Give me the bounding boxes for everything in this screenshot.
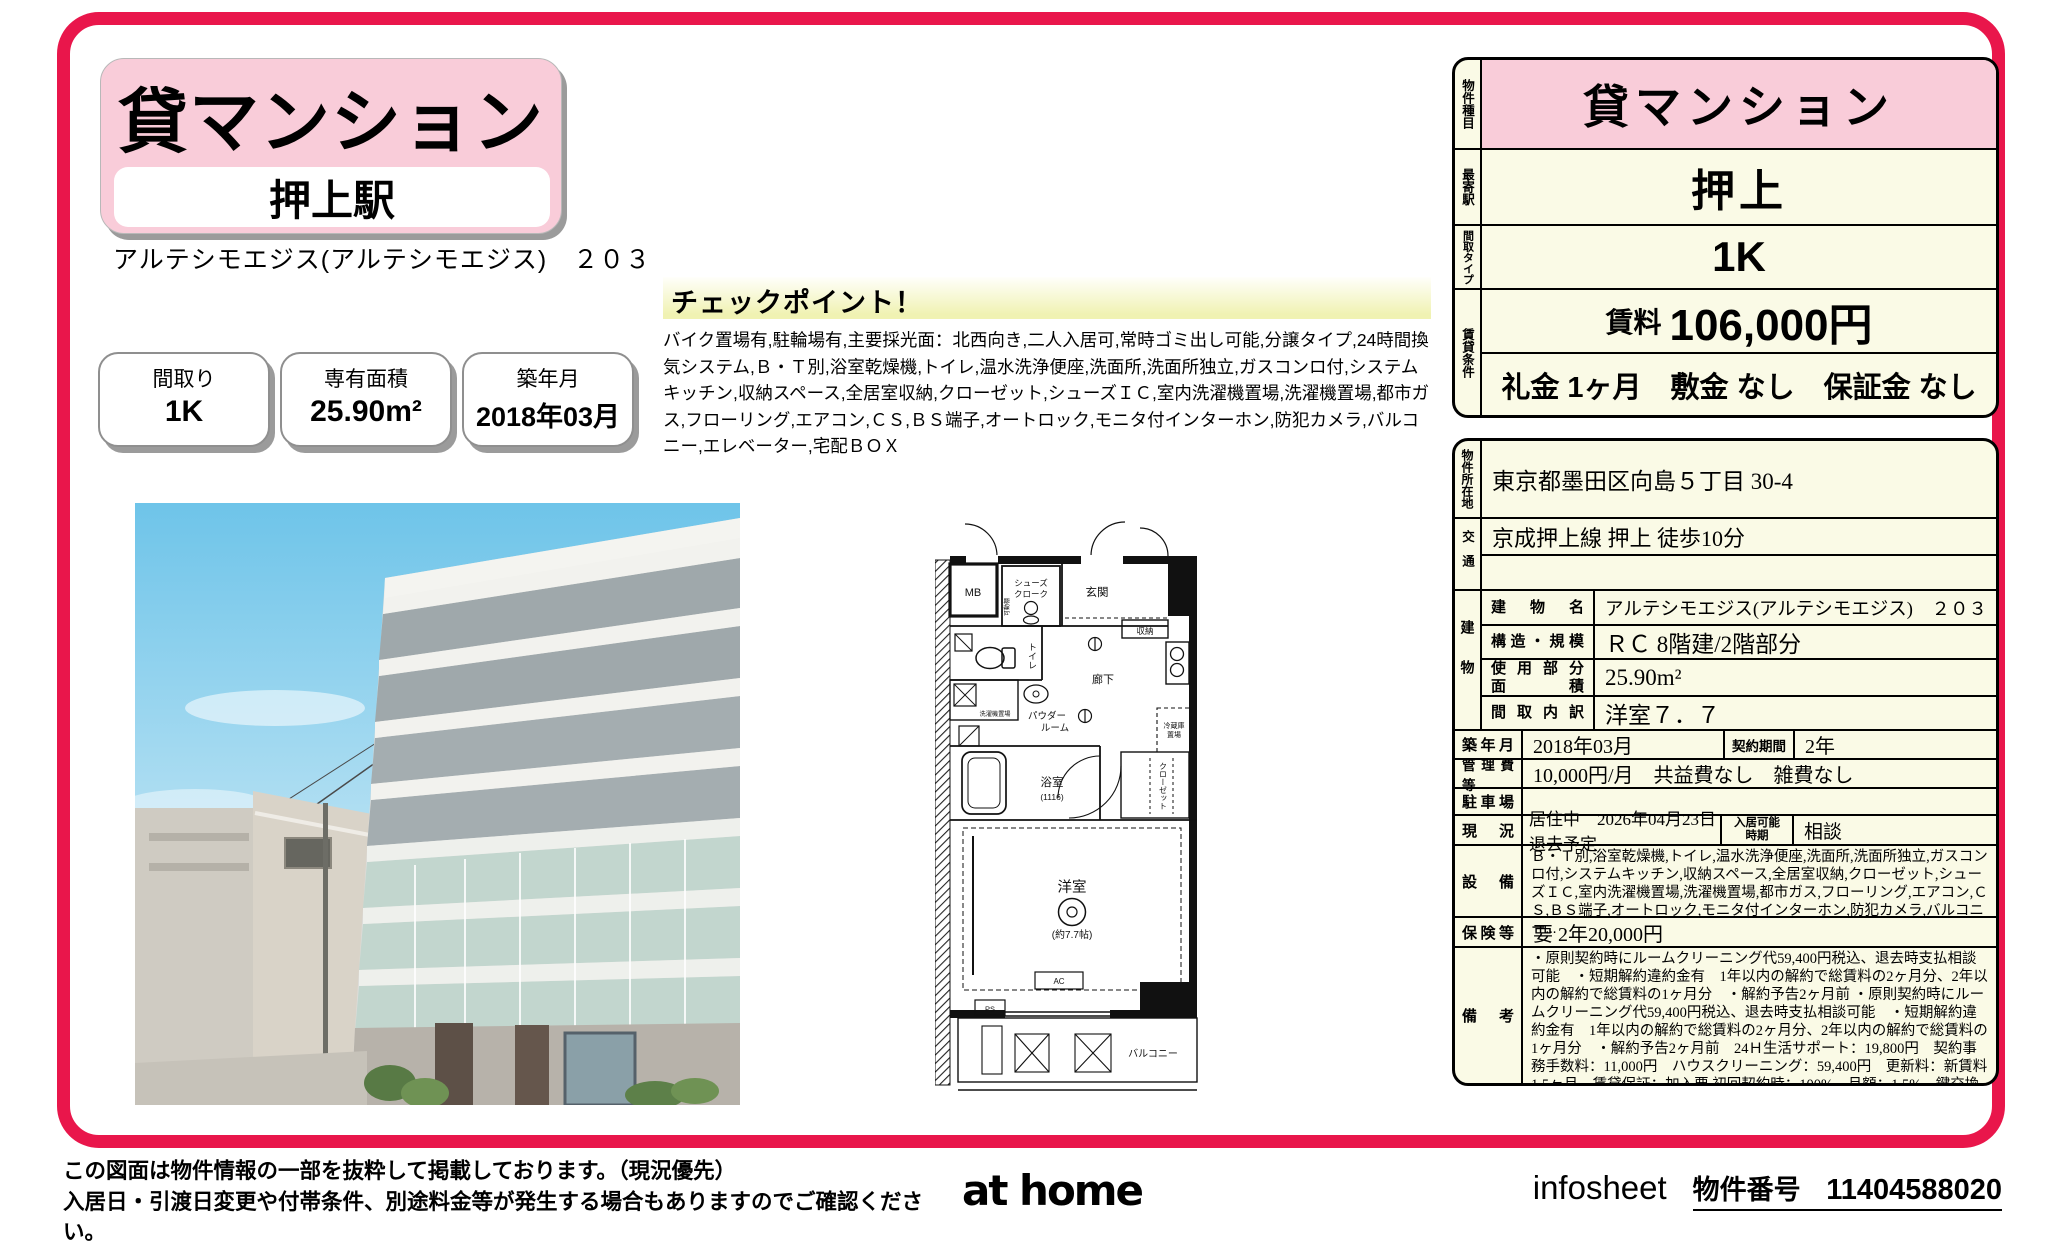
sublabel-cell: 使用部分 面 積 [1482,660,1595,695]
floor-plan-label-balcony: バルコニー [1128,1048,1178,1060]
property-number-value: 11404588020 [1826,1174,2002,1206]
building-photo [135,503,740,1105]
floor-plan-label-mb: MB [965,587,982,599]
fees-value: 10,000円/月 共益費なし 雑費なし [1523,760,1996,787]
floor-plan-label-room-size: (約7.7帖) [1052,928,1093,941]
insurance-value: 要 2年20,000円 [1523,918,1996,946]
property-type-title: 貸マンション [100,66,562,167]
move-in-value: 相談 [1794,816,1996,844]
footer-right: infosheet 物件番号 11404588020 [1520,1168,2002,1211]
station-value: 押上 [1482,150,1996,224]
athome-logo: at home [962,1166,1142,1215]
floor-plan-label-storage: 収納 [1136,626,1153,636]
contract-value: 2年 [1795,731,1996,758]
row-label: 交通 [1458,530,1477,579]
contract-label: 契約期間 [1732,735,1786,755]
row-label-cell: 物件種目 [1455,60,1482,148]
sublabel-cell: 間取内訳 [1482,697,1595,729]
floor-plan-label-bath-size: (1116) [1040,792,1063,802]
table-row: 設 備 Ｂ・Ｔ別,浴室乾燥機,トイレ,温水洗浄便座,洗面所,洗面所独立,ガスコン… [1455,844,1996,916]
floor-plan-label-fridge1: 冷蔵庫 [1164,721,1185,730]
area-value: 25.90m² [1595,660,1996,695]
floor-plan-label-powder1: パウダー [1028,710,1066,722]
floor-plan-label-laundry: 洗濯機置場 [980,710,1011,718]
status-value: 居住中 2026年04月23日退去予定 [1523,816,1720,844]
access-value: 京成押上線 押上 徒歩10分 [1482,519,1996,554]
notes-label: 備 考 [1462,1005,1514,1026]
detail-table: 物件所在地 東京都墨田区向島５丁目 30-4 交通 京成押上線 押上 徒歩10分… [1452,438,1999,1086]
building-name-value: アルテシモエジス(アルテシモエジス) ２０３ [1595,591,1996,624]
layout-value: 1K [1482,226,1996,288]
row-label-cell: 備 考 [1455,948,1523,1083]
row-label: 間取タイプ [1460,230,1476,285]
table-row: 保険等 要 2年20,000円 [1455,916,1996,946]
address-value: 東京都墨田区向島５丁目 30-4 [1482,441,1996,517]
table-row: 建物 建物名 アルテシモエジス(アルテシモエジス) ２０３ 構造・規模 ＲＣ 8… [1455,589,1996,729]
checkpoint-body: バイク置場有,駐輪場有,主要採光面：北西向き,二人入居可,常時ゴミ出し可能,分譲… [663,327,1435,460]
floor-plan-label-hallway: 廊下 [1092,672,1114,686]
spec-value: 25.90m² [282,395,450,429]
row-label-cell: 交通 [1455,519,1482,589]
table-row: 管理費等 10,000円/月 共益費なし 雑費なし [1455,758,1996,787]
row-label-cell: 管理費等 [1455,760,1523,787]
row-label: 賃貸条件 [1458,328,1477,378]
built-label: 築年月 [1462,734,1514,755]
area-label: 使用部分 面 積 [1491,660,1584,695]
checkpoint-title: チェックポイント！ [663,277,1431,319]
floor-plan-label-closet: クローゼット [1159,762,1168,810]
floor-plan-label-shoes2: クローク [1014,589,1048,599]
station-badge: 押上駅 [114,167,550,227]
property-type-value: 貸マンション [1482,60,1996,148]
move-in-label: 入居可能 時期 [1726,817,1788,842]
table-row: 物件所在地 東京都墨田区向島５丁目 30-4 [1455,441,1996,517]
table-row: 交通 京成押上線 押上 徒歩10分 [1455,517,1996,589]
row-label-cell: 駐車場 [1455,789,1523,814]
table-row: 物件種目 貸マンション [1455,60,1996,148]
infosheet-label: infosheet [1533,1169,1667,1207]
table-row: 最寄駅 押上 [1455,148,1996,224]
notes-value: ・原則契約時にルームクリーニング代59,400円税込、退去時支払相談可能 ・短期… [1523,948,1996,1086]
row-label: 最寄駅 [1458,168,1477,206]
row-label-cell: 賃貸条件 [1455,290,1482,415]
row-label-cell: 間取タイプ [1455,226,1482,288]
floor-plan-label-fridge2: 置場 [1167,730,1181,739]
row-label-cell: 最寄駅 [1455,150,1482,224]
row-label-cell: 現 況 [1455,816,1523,844]
table-row: 備 考 ・原則契約時にルームクリーニング代59,400円税込、退去時支払相談可能… [1455,946,1996,1083]
spec-box-area: 専有面積 25.90m² [280,352,452,447]
floor-plan-label-bath: 浴室 [1041,775,1064,789]
structure-label: 構造・規模 [1491,633,1584,650]
rent-value: 賃料 106,000円 [1482,290,1996,352]
floor-plan-label-entrance: 玄関 [1086,585,1109,599]
spec-value: 2018年03月 [464,395,632,434]
parking-label: 駐車場 [1462,791,1514,812]
structure-value: ＲＣ 8階建/2階部分 [1595,626,1996,658]
spec-box-built: 築年月 2018年03月 [462,352,634,447]
row-label: 物件所在地 [1459,449,1476,509]
spec-label: 築年月 [464,363,632,393]
floor-plan-label-toilet: トイレ [1027,643,1037,670]
insurance-label: 保険等 [1462,922,1514,943]
disclaimer-line: この図面は物件情報の一部を抜粋して掲載しております。（現況優先） [63,1156,963,1187]
table-row: 現 況 居住中 2026年04月23日退去予定 入居可能 時期 相談 [1455,814,1996,844]
footer-disclaimer: この図面は物件情報の一部を抜粋して掲載しております。（現況優先） 入居日・引渡日… [63,1156,963,1248]
floor-plan-label-ps: PS [985,1005,995,1014]
sublabel-cell: 建物名 [1482,591,1595,624]
row-label: 建物 [1458,620,1478,700]
floor-plan-label-powder2: ルーム [1041,723,1069,734]
property-number-label: 物件番号 [1693,1175,1801,1205]
table-row: 間取タイプ 1K [1455,224,1996,288]
row-label-cell: 物件所在地 [1455,441,1482,517]
status-label: 現 況 [1462,820,1514,841]
contract-label-cell: 契約期間 [1723,731,1795,758]
spec-label: 専有面積 [282,363,450,393]
floor-plan-label-shelf: 可動棚 [1003,598,1011,616]
building-name-label: 建物名 [1491,599,1584,616]
floor-plan-label-shoes1: シューズ [1014,578,1048,588]
spec-label: 間取り [100,363,268,393]
table-row: 築年月 2018年03月 契約期間 2年 [1455,729,1996,758]
move-in-label-cell: 入居可能 時期 [1720,816,1794,844]
spec-box-layout: 間取り 1K [98,352,270,447]
property-number: 物件番号 11404588020 [1693,1168,2002,1211]
row-label: 物件種目 [1458,79,1477,129]
row-label-cell: 設 備 [1455,846,1523,916]
layout-detail-value: 洋室７．７ [1595,697,1996,729]
rent-label: 賃料 [1605,301,1661,341]
built-value: 2018年03月 [1523,731,1723,758]
row-label-cell: 建物 [1455,591,1482,729]
summary-table: 物件種目 貸マンション 最寄駅 押上 間取タイプ 1K 賃貸条件 賃料 106,… [1452,57,1999,418]
equipment-label: 設 備 [1462,871,1514,892]
building-title: アルテシモエジス(アルテシモエジス) ２０３ [113,240,673,276]
floor-plan-label-room: 洋室 [1058,879,1087,896]
table-row: 賃貸条件 賃料 106,000円 礼金 1ヶ月 敷金 なし 保証金 なし [1455,288,1996,415]
disclaimer-line: 入居日・引渡日変更や付帯条件、別途料金等が発生する場合もありますのでご確認くださ… [63,1187,963,1248]
row-label-cell: 保険等 [1455,918,1523,946]
spec-value: 1K [100,395,268,429]
floor-plan-label-ac: AC [1053,977,1064,986]
layout-detail-label: 間取内訳 [1491,704,1584,721]
sublabel-cell: 構造・規模 [1482,626,1595,658]
terms-value: 礼金 1ヶ月 敷金 なし 保証金 なし [1482,354,1996,415]
rent-amount: 106,000円 [1669,289,1872,353]
access-value-2 [1482,556,1996,589]
floor-plan: MB シューズ クローク 可動棚 玄関 収納 トイレ 廊下 パウダー ルーム 洗… [935,520,1217,1112]
